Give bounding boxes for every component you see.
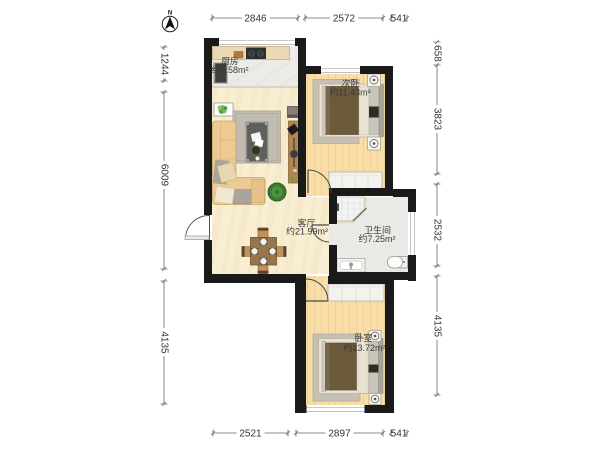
svg-text:4135: 4135 [431, 315, 442, 338]
svg-text:6009: 6009 [158, 164, 169, 187]
svg-text:541: 541 [391, 14, 408, 25]
svg-text:2521: 2521 [239, 429, 262, 440]
svg-text:541: 541 [391, 429, 408, 440]
svg-text:约7.25m²: 约7.25m² [358, 233, 395, 244]
svg-text:卧室: 卧室 [354, 332, 372, 343]
svg-text:约21.99m²: 约21.99m² [286, 226, 328, 237]
svg-text:3823: 3823 [431, 108, 442, 131]
svg-text:约11.43m²: 约11.43m² [329, 87, 370, 98]
svg-text:2572: 2572 [333, 14, 356, 25]
svg-text:1244: 1244 [158, 53, 169, 76]
svg-text:约13.72m²: 约13.72m² [343, 342, 385, 353]
svg-text:N: N [168, 11, 172, 17]
svg-text:4135: 4135 [158, 331, 169, 354]
svg-text:2846: 2846 [244, 14, 267, 25]
svg-text:658: 658 [431, 45, 442, 62]
svg-text:2897: 2897 [328, 429, 351, 440]
svg-text:约4.58m²: 约4.58m² [211, 64, 248, 75]
svg-text:2532: 2532 [431, 219, 442, 242]
